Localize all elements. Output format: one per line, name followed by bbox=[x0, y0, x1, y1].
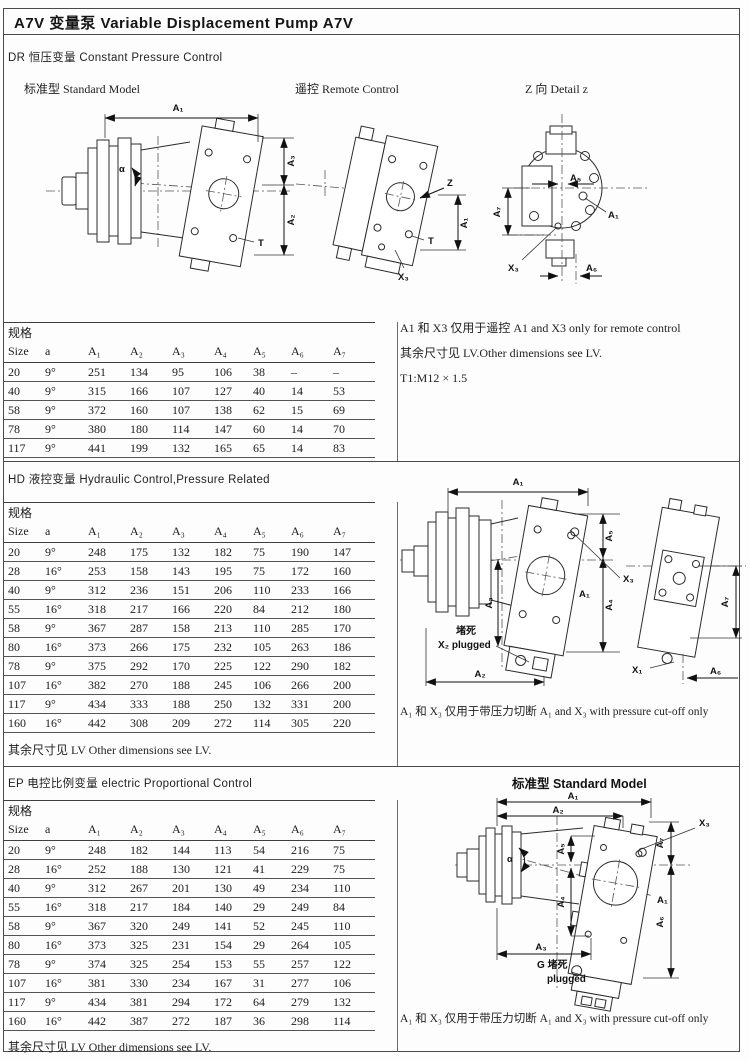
table-cell: 130 bbox=[167, 860, 209, 879]
dim-label-a1: A₁ bbox=[173, 103, 184, 114]
table-cell: 292 bbox=[125, 657, 167, 676]
table-cell: 75 bbox=[328, 841, 375, 860]
table-row: 5516°31821716622084212180 bbox=[3, 600, 375, 619]
table-cell: 308 bbox=[125, 714, 167, 733]
table-cell: 55 bbox=[3, 600, 40, 619]
table-cell: 16° bbox=[40, 898, 83, 917]
dr-table-divider bbox=[397, 322, 398, 461]
hd-pump-drawing: A₁ A₅ A₄ A₃ X₃ A₁ 堵死 X₂ plugged A₂ bbox=[398, 470, 748, 692]
table-cell: 245 bbox=[209, 676, 248, 695]
dim-label-a2: A₂ bbox=[474, 669, 485, 680]
table-cell: 442 bbox=[83, 1012, 125, 1031]
dim-label-a3: A₃ bbox=[535, 942, 546, 953]
table-cell: 58 bbox=[3, 917, 40, 936]
table-cell: 172 bbox=[209, 993, 248, 1012]
dim-label-a4: A₄ bbox=[556, 896, 567, 908]
table-cell: 217 bbox=[125, 600, 167, 619]
table-cell: 84 bbox=[328, 898, 375, 917]
table-cell: 166 bbox=[125, 382, 167, 401]
table-cell: 200 bbox=[328, 695, 375, 714]
dr-caption-standard: 标准型 Standard Model bbox=[24, 80, 140, 97]
table-cell: 69 bbox=[328, 401, 375, 420]
table-cell: 9° bbox=[40, 420, 83, 439]
table-cell: 166 bbox=[167, 600, 209, 619]
table-cell: 14 bbox=[286, 382, 328, 401]
col-header-a: a bbox=[40, 521, 83, 543]
table-cell: 236 bbox=[125, 581, 167, 600]
table-cell: 36 bbox=[248, 1012, 286, 1031]
table-cell: 266 bbox=[286, 676, 328, 695]
dim-label-a6: A₆ bbox=[655, 916, 666, 927]
flange-detail-view: A₅ A₁ A₇ X₃ A₆ bbox=[492, 114, 648, 284]
table-cell: 106 bbox=[328, 974, 375, 993]
dim-label-a6: A₆ bbox=[586, 263, 597, 274]
section-divider-1 bbox=[3, 461, 740, 462]
table-cell: 373 bbox=[83, 638, 125, 657]
col-header-a2: A₂ bbox=[125, 521, 167, 543]
hd-dimensions-table: 规格 Size a A₁ A₂ A₃ A₄ A₅ A₆ A₇ 209°24817… bbox=[3, 502, 375, 733]
table-cell: 14 bbox=[286, 439, 328, 458]
table-cell: 38 bbox=[248, 363, 286, 382]
table-cell: 367 bbox=[83, 917, 125, 936]
table-cell: 249 bbox=[286, 898, 328, 917]
table-cell: 325 bbox=[125, 955, 167, 974]
table-row: 5516°3182171841402924984 bbox=[3, 898, 375, 917]
dim-label-a4: A₄ bbox=[604, 599, 615, 611]
table-cell: 305 bbox=[286, 714, 328, 733]
table-cell: 40 bbox=[3, 581, 40, 600]
dr-section-title: DR 恒压变量 Constant Pressure Control bbox=[8, 49, 222, 65]
table-cell: 110 bbox=[328, 917, 375, 936]
table-cell: 234 bbox=[286, 879, 328, 898]
table-row: 589°36732024914152245110 bbox=[3, 917, 375, 936]
table-cell: 41 bbox=[248, 860, 286, 879]
table-cell: 175 bbox=[125, 543, 167, 562]
table-row: 589°367287158213110285170 bbox=[3, 619, 375, 638]
table-cell: 167 bbox=[209, 974, 248, 993]
dr-standard-pump-drawing: α A₁ A₃ A₂ T bbox=[40, 98, 300, 305]
table-cell: 9° bbox=[40, 657, 83, 676]
table-cell: 132 bbox=[248, 695, 286, 714]
table-cell: 58 bbox=[3, 401, 40, 420]
table-cell: 180 bbox=[125, 420, 167, 439]
dim-label-a2: A₂ bbox=[552, 805, 563, 816]
table-cell: 249 bbox=[167, 917, 209, 936]
title-divider bbox=[3, 34, 740, 35]
dim-label-a3: A₃ bbox=[484, 597, 495, 608]
table-cell: 110 bbox=[248, 619, 286, 638]
table-cell: 29 bbox=[248, 898, 286, 917]
table-cell: 160 bbox=[125, 401, 167, 420]
table-cell: 200 bbox=[328, 676, 375, 695]
spec-label: 规格 bbox=[3, 503, 375, 522]
table-cell: 14 bbox=[286, 420, 328, 439]
table-cell: 117 bbox=[3, 993, 40, 1012]
dim-label-a5: A₅ bbox=[604, 530, 615, 541]
table-cell: 64 bbox=[248, 993, 286, 1012]
ep-note-right: A₁ 和 X₃ 仅用于带压力切断 A₁ and X₃ with pressure… bbox=[400, 1010, 708, 1026]
table-cell: 9° bbox=[40, 363, 83, 382]
table-cell: 9° bbox=[40, 841, 83, 860]
table-cell: 28 bbox=[3, 860, 40, 879]
table-cell: 75 bbox=[248, 562, 286, 581]
dr-dimensions-table: 规格 Size a A₁ A₂ A₃ A₄ A₅ A₆ A₇ 209°25113… bbox=[3, 322, 375, 458]
table-cell: 122 bbox=[248, 657, 286, 676]
dim-label-a7: A₇ bbox=[492, 206, 503, 217]
dim-label-x3: X₃ bbox=[508, 263, 519, 274]
table-cell: 78 bbox=[3, 955, 40, 974]
dim-label-x3: X₃ bbox=[699, 818, 710, 829]
col-header-a3: A₃ bbox=[167, 819, 209, 841]
table-cell: 312 bbox=[83, 879, 125, 898]
table-cell: 28 bbox=[3, 562, 40, 581]
table-cell: 9° bbox=[40, 382, 83, 401]
table-cell: 188 bbox=[125, 860, 167, 879]
table-cell: 257 bbox=[286, 955, 328, 974]
table-cell: 315 bbox=[83, 382, 125, 401]
valve-block bbox=[330, 125, 439, 276]
table-cell: 318 bbox=[83, 600, 125, 619]
table-cell: 182 bbox=[125, 841, 167, 860]
table-cell: 62 bbox=[248, 401, 286, 420]
col-header-a: a bbox=[40, 819, 83, 841]
table-cell: 16° bbox=[40, 936, 83, 955]
table-row: 10716°382270188245106266200 bbox=[3, 676, 375, 695]
table-cell: 374 bbox=[83, 955, 125, 974]
table-row: 1179°441199132165651483 bbox=[3, 439, 375, 458]
table-cell: 147 bbox=[209, 420, 248, 439]
plugged-label-en: plugged bbox=[547, 974, 586, 985]
hd-note-bottom: 其余尺寸见 LV Other dimensions see LV. bbox=[8, 738, 211, 763]
table-cell: 80 bbox=[3, 936, 40, 955]
table-cell: – bbox=[286, 363, 328, 382]
dim-label-a1: A₁ bbox=[513, 477, 524, 488]
dr-notes: A1 和 X3 仅用于遥控 A1 and X3 only for remote … bbox=[400, 316, 681, 391]
col-header-size: Size bbox=[3, 341, 40, 363]
table-cell: 180 bbox=[328, 600, 375, 619]
table-row: 409°31226720113049234110 bbox=[3, 879, 375, 898]
col-header-a6: A₆ bbox=[286, 341, 328, 363]
table-cell: 20 bbox=[3, 543, 40, 562]
ep-dimensions-table: 规格 Size a A₁ A₂ A₃ A₄ A₅ A₆ A₇ 209°24818… bbox=[3, 800, 375, 1031]
table-cell: 107 bbox=[3, 676, 40, 695]
table-row: 789°375292170225122290182 bbox=[3, 657, 375, 676]
table-cell: 75 bbox=[248, 543, 286, 562]
table-cell: 217 bbox=[125, 898, 167, 917]
col-header-a1: A₁ bbox=[83, 341, 125, 363]
table-cell: 160 bbox=[3, 1012, 40, 1031]
table-cell: 130 bbox=[209, 879, 248, 898]
table-cell: 220 bbox=[328, 714, 375, 733]
table-cell: 78 bbox=[3, 657, 40, 676]
table-cell: 175 bbox=[167, 638, 209, 657]
table-row: 8016°37332523115429264105 bbox=[3, 936, 375, 955]
col-header-a1: A₁ bbox=[83, 819, 125, 841]
table-cell: 55 bbox=[248, 955, 286, 974]
table-cell: 381 bbox=[125, 993, 167, 1012]
dim-label-z: Z bbox=[447, 178, 453, 189]
table-cell: 106 bbox=[209, 363, 248, 382]
table-cell: 58 bbox=[3, 619, 40, 638]
table-cell: 266 bbox=[125, 638, 167, 657]
table-cell: 434 bbox=[83, 695, 125, 714]
table-row: 2816°25315814319575172160 bbox=[3, 562, 375, 581]
table-cell: 182 bbox=[209, 543, 248, 562]
table-cell: 263 bbox=[286, 638, 328, 657]
col-header-a6: A₆ bbox=[286, 819, 328, 841]
table-cell: 199 bbox=[125, 439, 167, 458]
dim-label-a1-callout: A₁ bbox=[579, 589, 590, 600]
col-header-a4: A₄ bbox=[209, 819, 248, 841]
table-cell: 107 bbox=[167, 382, 209, 401]
table-cell: 213 bbox=[209, 619, 248, 638]
table-cell: 105 bbox=[328, 936, 375, 955]
table-cell: 107 bbox=[167, 401, 209, 420]
table-cell: 187 bbox=[209, 1012, 248, 1031]
dr-note-2: 其余尺寸见 LV.Other dimensions see LV. bbox=[400, 341, 681, 366]
dim-label-a1: A₁ bbox=[568, 791, 579, 802]
table-cell: 117 bbox=[3, 439, 40, 458]
dim-label-a1: A₁ bbox=[608, 210, 619, 221]
table-cell: 372 bbox=[83, 401, 125, 420]
table-cell: 9° bbox=[40, 879, 83, 898]
col-header-a1: A₁ bbox=[83, 521, 125, 543]
table-cell: 138 bbox=[209, 401, 248, 420]
table-cell: 186 bbox=[328, 638, 375, 657]
table-cell: 29 bbox=[248, 936, 286, 955]
table-cell: 325 bbox=[125, 936, 167, 955]
table-cell: 83 bbox=[328, 439, 375, 458]
table-cell: 209 bbox=[167, 714, 209, 733]
plugged-label-g: G 堵死 bbox=[537, 958, 568, 971]
table-row: 209°24817513218275190147 bbox=[3, 543, 375, 562]
hd-section-title: HD 液控变量 Hydraulic Control,Pressure Relat… bbox=[8, 471, 270, 487]
table-cell: 49 bbox=[248, 879, 286, 898]
table-cell: 80 bbox=[3, 638, 40, 657]
table-cell: 140 bbox=[209, 898, 248, 917]
table-cell: 9° bbox=[40, 439, 83, 458]
table-cell: 9° bbox=[40, 619, 83, 638]
col-header-a2: A₂ bbox=[125, 819, 167, 841]
ep-table-divider bbox=[397, 800, 398, 1052]
spec-label: 规格 bbox=[3, 801, 375, 820]
table-cell: 212 bbox=[286, 600, 328, 619]
table-cell: 16° bbox=[40, 562, 83, 581]
table-cell: 52 bbox=[248, 917, 286, 936]
dim-label-a7: A₇ bbox=[720, 596, 731, 607]
table-cell: 279 bbox=[286, 993, 328, 1012]
table-row: 789°380180114147601470 bbox=[3, 420, 375, 439]
ep-pump-drawing: A₁ A₂ X₃ A₇ A₆ A₅ A₄ α A₁ A₃ G 堵死 plugge… bbox=[453, 788, 745, 1022]
table-cell: 201 bbox=[167, 879, 209, 898]
table-cell: 318 bbox=[83, 898, 125, 917]
table-cell: 233 bbox=[286, 581, 328, 600]
table-cell: 114 bbox=[248, 714, 286, 733]
table-cell: 132 bbox=[167, 543, 209, 562]
table-cell: 290 bbox=[286, 657, 328, 676]
table-cell: 434 bbox=[83, 993, 125, 1012]
hd-rear-view: A₇ X₁ A₆ bbox=[626, 497, 746, 684]
table-cell: 144 bbox=[167, 841, 209, 860]
table-cell: 78 bbox=[3, 420, 40, 439]
table-row: 409°312236151206110233166 bbox=[3, 581, 375, 600]
pump-side-view: α A₁ A₃ A₂ T bbox=[46, 103, 297, 277]
table-cell: 160 bbox=[3, 714, 40, 733]
dim-label-x1: X₁ bbox=[632, 665, 642, 676]
ep-side-view: A₁ A₂ X₃ A₇ A₆ A₅ A₄ α A₁ A₃ G 堵死 plugge… bbox=[455, 791, 710, 1014]
table-cell: 16° bbox=[40, 860, 83, 879]
table-cell: 114 bbox=[328, 1012, 375, 1031]
table-cell: 442 bbox=[83, 714, 125, 733]
table-cell: 143 bbox=[167, 562, 209, 581]
table-cell: 75 bbox=[328, 860, 375, 879]
ep-note-bottom: 其余尺寸见 LV Other dimensions see LV. bbox=[8, 1035, 211, 1060]
table-cell: 248 bbox=[83, 543, 125, 562]
page-title: A7V 变量泵 Variable Displacement Pump A7V bbox=[14, 12, 353, 33]
table-cell: 387 bbox=[125, 1012, 167, 1031]
plugged-label-x2: X₂ plugged bbox=[438, 640, 491, 651]
table-cell: 225 bbox=[209, 657, 248, 676]
dim-label-a7: A₇ bbox=[655, 837, 666, 848]
table-cell: 16° bbox=[40, 638, 83, 657]
hd-side-view: A₁ A₅ A₄ A₃ X₃ A₁ 堵死 X₂ plugged A₂ bbox=[400, 477, 634, 686]
table-cell: 113 bbox=[209, 841, 248, 860]
table-cell: 158 bbox=[167, 619, 209, 638]
hd-note-right: A₁ 和 X₃ 仅用于带压力切断 A₁ and X₃ with pressure… bbox=[400, 703, 708, 719]
dr-note-3: T1:M12 × 1.5 bbox=[400, 366, 681, 391]
table-cell: 170 bbox=[328, 619, 375, 638]
table-cell: 121 bbox=[209, 860, 248, 879]
table-cell: – bbox=[328, 363, 375, 382]
dim-label-a1: A₁ bbox=[459, 218, 470, 229]
table-cell: 95 bbox=[167, 363, 209, 382]
table-cell: 20 bbox=[3, 841, 40, 860]
table-cell: 250 bbox=[209, 695, 248, 714]
table-cell: 188 bbox=[167, 695, 209, 714]
table-cell: 16° bbox=[40, 974, 83, 993]
table-cell: 16° bbox=[40, 1012, 83, 1031]
table-cell: 206 bbox=[209, 581, 248, 600]
table-cell: 190 bbox=[286, 543, 328, 562]
dr-z-detail-drawing: A₅ A₁ A₇ X₃ A₆ bbox=[488, 108, 738, 300]
remote-view: Z A₁ T X₃ bbox=[296, 125, 470, 283]
table-cell: 381 bbox=[83, 974, 125, 993]
table-row: 1179°434333188250132331200 bbox=[3, 695, 375, 714]
col-header-a4: A₄ bbox=[209, 341, 248, 363]
table-cell: 298 bbox=[286, 1012, 328, 1031]
table-cell: 132 bbox=[328, 993, 375, 1012]
table-cell: 16° bbox=[40, 600, 83, 619]
table-cell: 216 bbox=[286, 841, 328, 860]
table-cell: 367 bbox=[83, 619, 125, 638]
table-cell: 147 bbox=[328, 543, 375, 562]
col-header-a7: A₇ bbox=[328, 819, 375, 841]
table-row: 2816°2521881301214122975 bbox=[3, 860, 375, 879]
table-cell: 70 bbox=[328, 420, 375, 439]
table-cell: 373 bbox=[83, 936, 125, 955]
table-cell: 40 bbox=[3, 382, 40, 401]
col-header-a7: A₇ bbox=[328, 341, 375, 363]
col-header-a5: A₅ bbox=[248, 819, 286, 841]
dim-label-alpha: α bbox=[507, 854, 513, 865]
table-cell: 380 bbox=[83, 420, 125, 439]
table-cell: 287 bbox=[125, 619, 167, 638]
table-cell: 9° bbox=[40, 917, 83, 936]
col-header-a5: A₅ bbox=[248, 521, 286, 543]
table-row: 16016°442308209272114305220 bbox=[3, 714, 375, 733]
section-divider-2 bbox=[3, 766, 740, 767]
dim-label-x3: X₃ bbox=[623, 574, 634, 585]
table-row: 409°315166107127401453 bbox=[3, 382, 375, 401]
dim-label-a5: A₅ bbox=[570, 173, 581, 184]
table-cell: 220 bbox=[209, 600, 248, 619]
dr-remote-pump-drawing: Z A₁ T X₃ bbox=[292, 98, 492, 305]
table-cell: 15 bbox=[286, 401, 328, 420]
table-cell: 170 bbox=[167, 657, 209, 676]
table-cell: 60 bbox=[248, 420, 286, 439]
table-cell: 172 bbox=[286, 562, 328, 581]
table-cell: 382 bbox=[83, 676, 125, 695]
table-cell: 195 bbox=[209, 562, 248, 581]
table-row: 209°2511349510638–– bbox=[3, 363, 375, 382]
table-cell: 245 bbox=[286, 917, 328, 936]
col-header-a3: A₃ bbox=[167, 521, 209, 543]
dim-label-a6: A₆ bbox=[710, 666, 721, 677]
table-row: 1179°43438129417264279132 bbox=[3, 993, 375, 1012]
plugged-label-cn: 堵死 bbox=[456, 624, 476, 637]
table-cell: 40 bbox=[3, 879, 40, 898]
table-cell: 234 bbox=[167, 974, 209, 993]
table-row: 209°2481821441135421675 bbox=[3, 841, 375, 860]
dr-note-1: A1 和 X3 仅用于遥控 A1 and X3 only for remote … bbox=[400, 316, 681, 341]
col-header-a6: A₆ bbox=[286, 521, 328, 543]
table-row: 589°372160107138621569 bbox=[3, 401, 375, 420]
table-cell: 31 bbox=[248, 974, 286, 993]
table-cell: 333 bbox=[125, 695, 167, 714]
table-cell: 55 bbox=[3, 898, 40, 917]
valve-block bbox=[178, 116, 265, 276]
spec-label: 规格 bbox=[3, 323, 375, 342]
table-cell: 272 bbox=[167, 1012, 209, 1031]
table-cell: 40 bbox=[248, 382, 286, 401]
table-row: 789°37432525415355257122 bbox=[3, 955, 375, 974]
dim-label-a5: A₅ bbox=[556, 843, 567, 854]
col-header-a3: A₃ bbox=[167, 341, 209, 363]
table-cell: 9° bbox=[40, 401, 83, 420]
table-cell: 294 bbox=[167, 993, 209, 1012]
table-cell: 127 bbox=[209, 382, 248, 401]
table-cell: 331 bbox=[286, 695, 328, 714]
table-row: 8016°373266175232105263186 bbox=[3, 638, 375, 657]
table-cell: 154 bbox=[209, 936, 248, 955]
table-cell: 132 bbox=[167, 439, 209, 458]
ep-section-title: EP 电控比例变量 electric Proportional Control bbox=[8, 775, 252, 791]
table-cell: 153 bbox=[209, 955, 248, 974]
dim-label-a1-callout: A₁ bbox=[657, 895, 668, 906]
dr-caption-detail: Z 向 Detail z bbox=[525, 80, 588, 97]
dim-label-t: T bbox=[258, 238, 264, 249]
col-header-a4: A₄ bbox=[209, 521, 248, 543]
table-row: 10716°38133023416731277106 bbox=[3, 974, 375, 993]
table-cell: 9° bbox=[40, 695, 83, 714]
table-cell: 16° bbox=[40, 676, 83, 695]
table-cell: 114 bbox=[167, 420, 209, 439]
table-cell: 232 bbox=[209, 638, 248, 657]
table-cell: 9° bbox=[40, 543, 83, 562]
table-cell: 160 bbox=[328, 562, 375, 581]
dim-label-alpha: α bbox=[119, 164, 125, 175]
table-cell: 375 bbox=[83, 657, 125, 676]
